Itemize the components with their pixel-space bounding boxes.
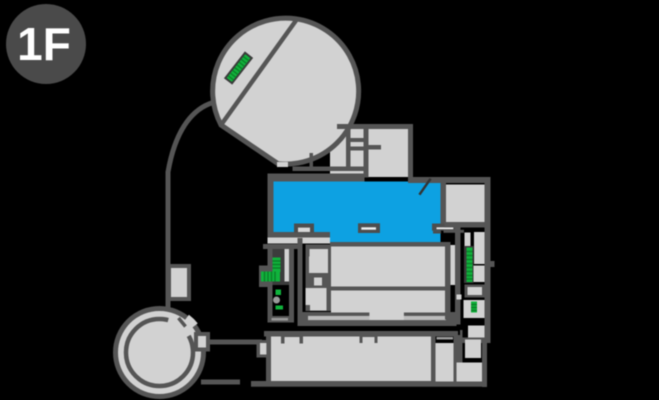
svg-text:1F: 1F (17, 18, 71, 70)
